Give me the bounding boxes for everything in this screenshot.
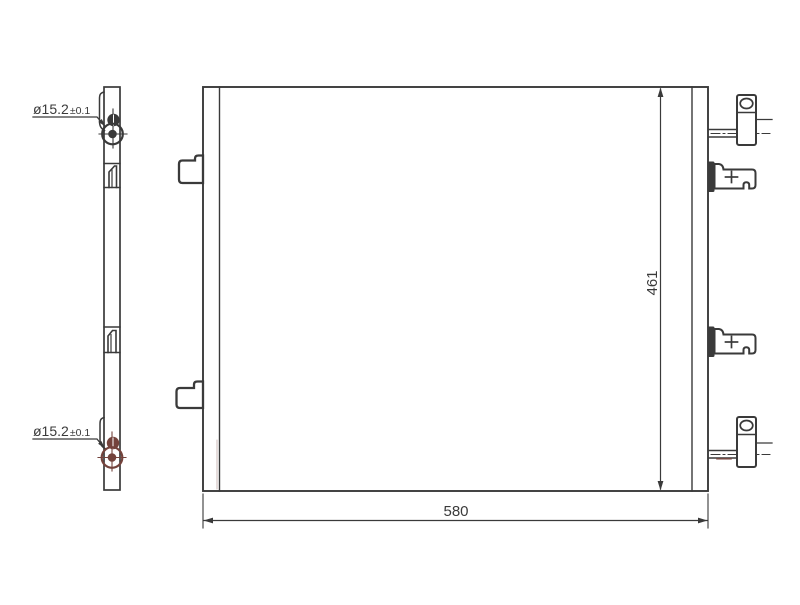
condenser-technical-drawing: ø15.2±0.1 ø15.2±0.1 xyxy=(0,0,800,600)
fitting-top xyxy=(737,95,756,145)
callout-port-bottom: ø15.2±0.1 xyxy=(33,423,105,449)
callout-bottom-tolerance: ±0.1 xyxy=(70,427,91,439)
core-outline xyxy=(203,87,708,491)
dim-arrow-down xyxy=(658,481,664,491)
bracket-mount-bar xyxy=(708,162,715,193)
port-center-dot xyxy=(108,130,117,139)
bracket-top xyxy=(708,162,756,193)
dim-arrow-up xyxy=(658,88,664,98)
dimension-width: 580 xyxy=(203,494,708,528)
bracket-middle xyxy=(708,327,756,358)
port-center-dot xyxy=(108,453,117,462)
dimension-height: 461 xyxy=(644,88,663,491)
dim-arrow-right xyxy=(698,518,708,524)
callout-top-tolerance: ±0.1 xyxy=(70,105,91,117)
fitting-bottom xyxy=(737,417,756,467)
callout-top-label: ø15.2±0.1 xyxy=(33,101,90,117)
callout-bottom-leader xyxy=(33,439,104,447)
callout-bottom-diameter: ø15.2 xyxy=(33,423,69,439)
dim-height-value: 461 xyxy=(644,270,661,295)
dim-width-value: 580 xyxy=(443,503,468,520)
callout-bottom-label: ø15.2±0.1 xyxy=(33,423,90,439)
front-view xyxy=(177,87,709,491)
side-view-body xyxy=(104,87,120,490)
mount-tab-bottom-left xyxy=(177,382,204,409)
drawing-canvas: ø15.2±0.1 ø15.2±0.1 xyxy=(0,0,800,600)
side-view xyxy=(98,87,127,490)
callout-top-diameter: ø15.2 xyxy=(33,101,69,117)
mount-tab-top-left xyxy=(179,156,203,184)
callout-port-top: ø15.2±0.1 xyxy=(33,101,106,127)
dim-arrow-left xyxy=(204,518,214,524)
side-port-bottom xyxy=(98,432,126,471)
callout-top-leader xyxy=(33,117,104,125)
